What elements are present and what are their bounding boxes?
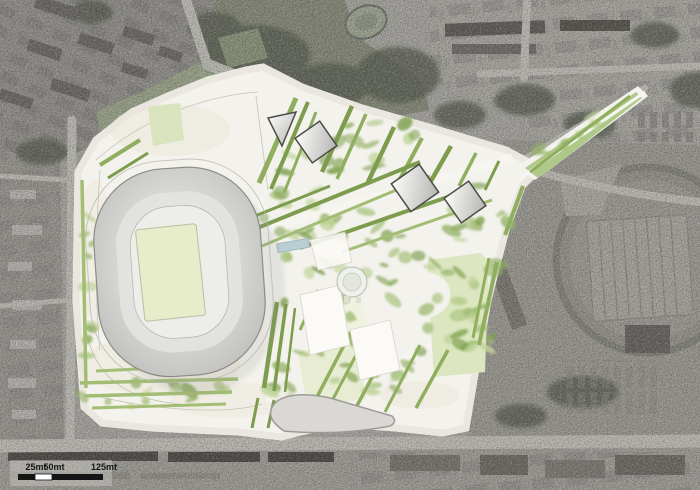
north-lawn xyxy=(148,103,184,146)
site-plan-canvas: 25mt 50mt 125mt xyxy=(0,0,700,490)
scale-bar: 25mt 50mt 125mt xyxy=(10,460,117,486)
vegetation-blob xyxy=(142,398,150,405)
scale-bar-seg-3 xyxy=(52,474,103,480)
scale-label-125: 125mt xyxy=(91,462,117,472)
scale-bar-seg-2 xyxy=(35,474,52,480)
stadium-pitch xyxy=(135,224,205,322)
scale-bar-seg-1 xyxy=(18,474,35,480)
scale-label-50: 50mt xyxy=(43,462,64,472)
masterplan-rendering: 25mt 50mt 125mt xyxy=(0,0,700,490)
